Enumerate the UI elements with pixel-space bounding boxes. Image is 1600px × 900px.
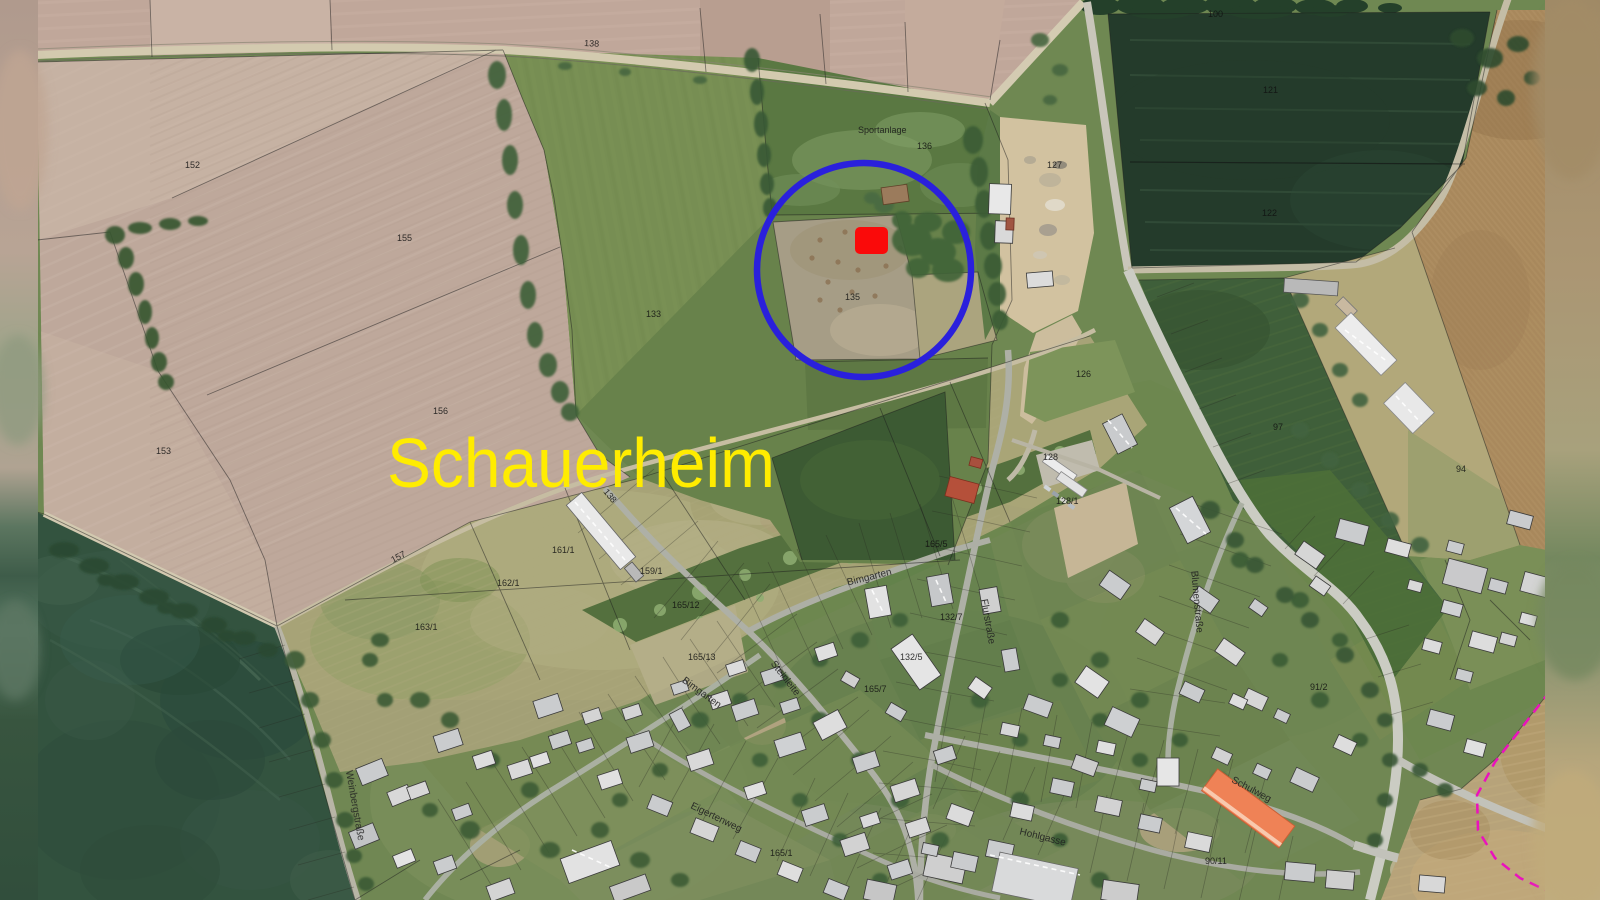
- svg-text:165/12: 165/12: [672, 600, 700, 610]
- svg-text:165/13: 165/13: [688, 652, 716, 662]
- svg-text:135: 135: [845, 292, 860, 302]
- svg-text:128/1: 128/1: [1056, 496, 1079, 506]
- svg-text:163/1: 163/1: [415, 622, 438, 632]
- svg-text:121: 121: [1263, 85, 1278, 95]
- svg-text:162/1: 162/1: [497, 578, 520, 588]
- svg-text:100: 100: [1208, 9, 1223, 19]
- svg-text:90/11: 90/11: [1205, 856, 1227, 866]
- svg-text:94: 94: [1456, 464, 1466, 474]
- svg-text:152: 152: [185, 160, 200, 170]
- svg-text:155: 155: [397, 233, 412, 243]
- svg-text:165/5: 165/5: [925, 539, 948, 549]
- svg-text:133: 133: [646, 309, 661, 319]
- svg-text:97: 97: [1273, 422, 1283, 432]
- svg-text:136: 136: [917, 141, 932, 151]
- svg-text:156: 156: [433, 406, 448, 416]
- svg-text:138: 138: [584, 38, 600, 49]
- svg-text:122: 122: [1262, 208, 1277, 218]
- svg-text:126: 126: [1076, 369, 1091, 379]
- svg-text:128: 128: [1043, 452, 1058, 462]
- svg-text:127: 127: [1047, 160, 1062, 170]
- svg-text:165/7: 165/7: [864, 684, 887, 694]
- svg-text:132/7: 132/7: [940, 612, 963, 622]
- svg-text:Schauerheim: Schauerheim: [387, 424, 775, 502]
- svg-text:153: 153: [156, 446, 171, 456]
- svg-text:159/1: 159/1: [640, 566, 663, 576]
- svg-text:161/1: 161/1: [552, 545, 575, 555]
- svg-text:Sportanlage: Sportanlage: [858, 125, 907, 135]
- svg-text:132/5: 132/5: [900, 652, 923, 662]
- svg-text:165/1: 165/1: [770, 848, 793, 858]
- svg-text:91/2: 91/2: [1310, 682, 1328, 692]
